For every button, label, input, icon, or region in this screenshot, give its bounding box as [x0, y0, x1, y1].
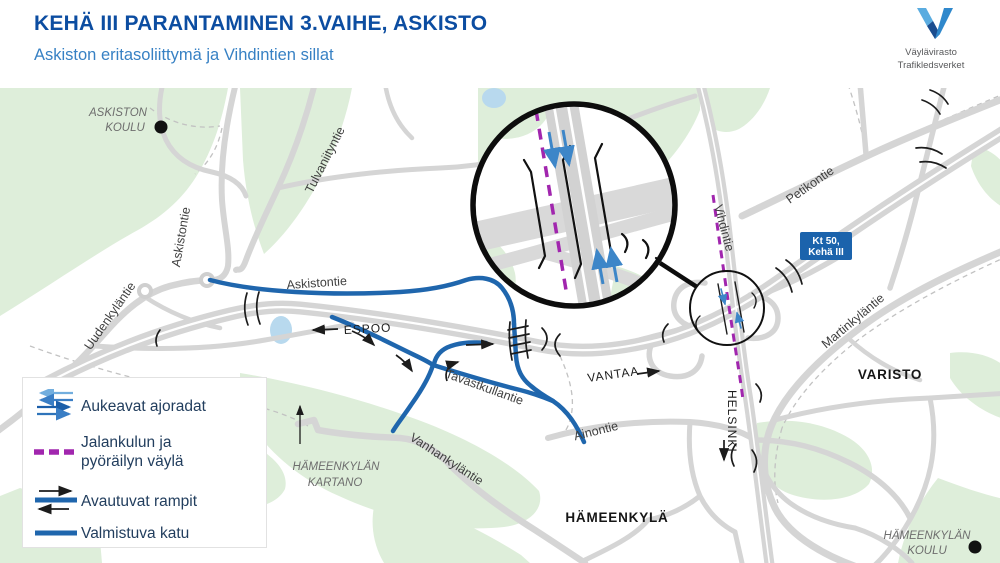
logo-text-line1: Väylävirasto — [876, 46, 986, 59]
infographic-page: KEHÄ III PARANTAMINEN 3.VAIHE, ASKISTO A… — [0, 0, 1000, 563]
svg-text:KARTANO: KARTANO — [308, 477, 363, 489]
agency-logo: Väylävirasto Trafikledsverket — [876, 5, 986, 72]
svg-text:KOULU: KOULU — [105, 122, 145, 134]
legend-item-opening-ramps: Avautuvat rampit — [23, 484, 266, 518]
road-number-badge: Kt 50, Kehä III — [800, 232, 852, 260]
askiston-koulu-dot — [155, 121, 168, 134]
map-label-ainontie: Ainontie — [572, 419, 619, 444]
svg-text:KOULU: KOULU — [907, 545, 947, 557]
page-title: KEHÄ III PARANTAMINEN 3.VAIHE, ASKISTO — [34, 12, 487, 36]
completing-street-icon — [31, 525, 81, 541]
page-subtitle: Askiston eritasoliittymä ja Vihdintien s… — [34, 46, 334, 65]
header: KEHÄ III PARANTAMINEN 3.VAIHE, ASKISTO A… — [0, 0, 1000, 88]
map-label-askistontie-vertical: Askistontie — [169, 206, 193, 268]
map-label-vantaa: VANTAA — [586, 364, 640, 385]
legend-item-completing-street: Valmistuva katu — [23, 520, 266, 546]
vaylavirasto-v-icon — [876, 5, 986, 41]
magnifier-connector-line — [660, 263, 697, 287]
map-label-hameenkylan-koulu: HÄMEENKYLÄN — [884, 530, 972, 542]
badge-line1: Kt 50, — [812, 236, 839, 247]
legend-label-line2: pyöräilyn väylä — [81, 452, 184, 471]
map-label-askiston-koulu: ASKISTON — [88, 107, 148, 119]
map-label-varisto: VARISTO — [858, 367, 922, 382]
opening-ramps-icon — [31, 485, 81, 517]
legend-item-opening-carriageways: Aukeavat ajoradat — [23, 388, 266, 424]
legend-label: Valmistuva katu — [81, 524, 189, 543]
map-label-helsinki: HELSINKI — [725, 390, 739, 453]
hameenkylan-koulu-dot — [969, 541, 982, 554]
pedestrian-cycleway-dash-icon — [31, 442, 81, 462]
map-label-hameenkylan-kartano: HÄMEENKYLÄN — [293, 461, 381, 473]
logo-text-line2: Trafikledsverket — [876, 59, 986, 72]
legend-label: Avautuvat rampit — [81, 492, 197, 511]
map-label-espoo: ESPOO — [343, 321, 391, 337]
badge-line2: Kehä III — [808, 247, 844, 258]
legend-label-line1: Jalankulun ja — [81, 433, 184, 452]
legend-item-pedestrian-cycleway: Jalankulun ja pyöräilyn väylä — [23, 428, 266, 476]
map-label-askistontie: Askistontie — [286, 274, 347, 292]
map-label-vihdintie: Vihdintie — [711, 203, 737, 253]
map-label-hameenkyla: HÄMEENKYLÄ — [565, 510, 668, 525]
espoo-direction-arrow-icon — [313, 329, 338, 330]
map-label-petikontie: Petikontie — [783, 163, 836, 206]
opening-carriageways-arrows-icon — [31, 389, 81, 423]
legend-label: Aukeavat ajoradat — [81, 397, 206, 416]
legend-panel: Aukeavat ajoradat Jalankulun ja pyöräily… — [22, 377, 267, 548]
